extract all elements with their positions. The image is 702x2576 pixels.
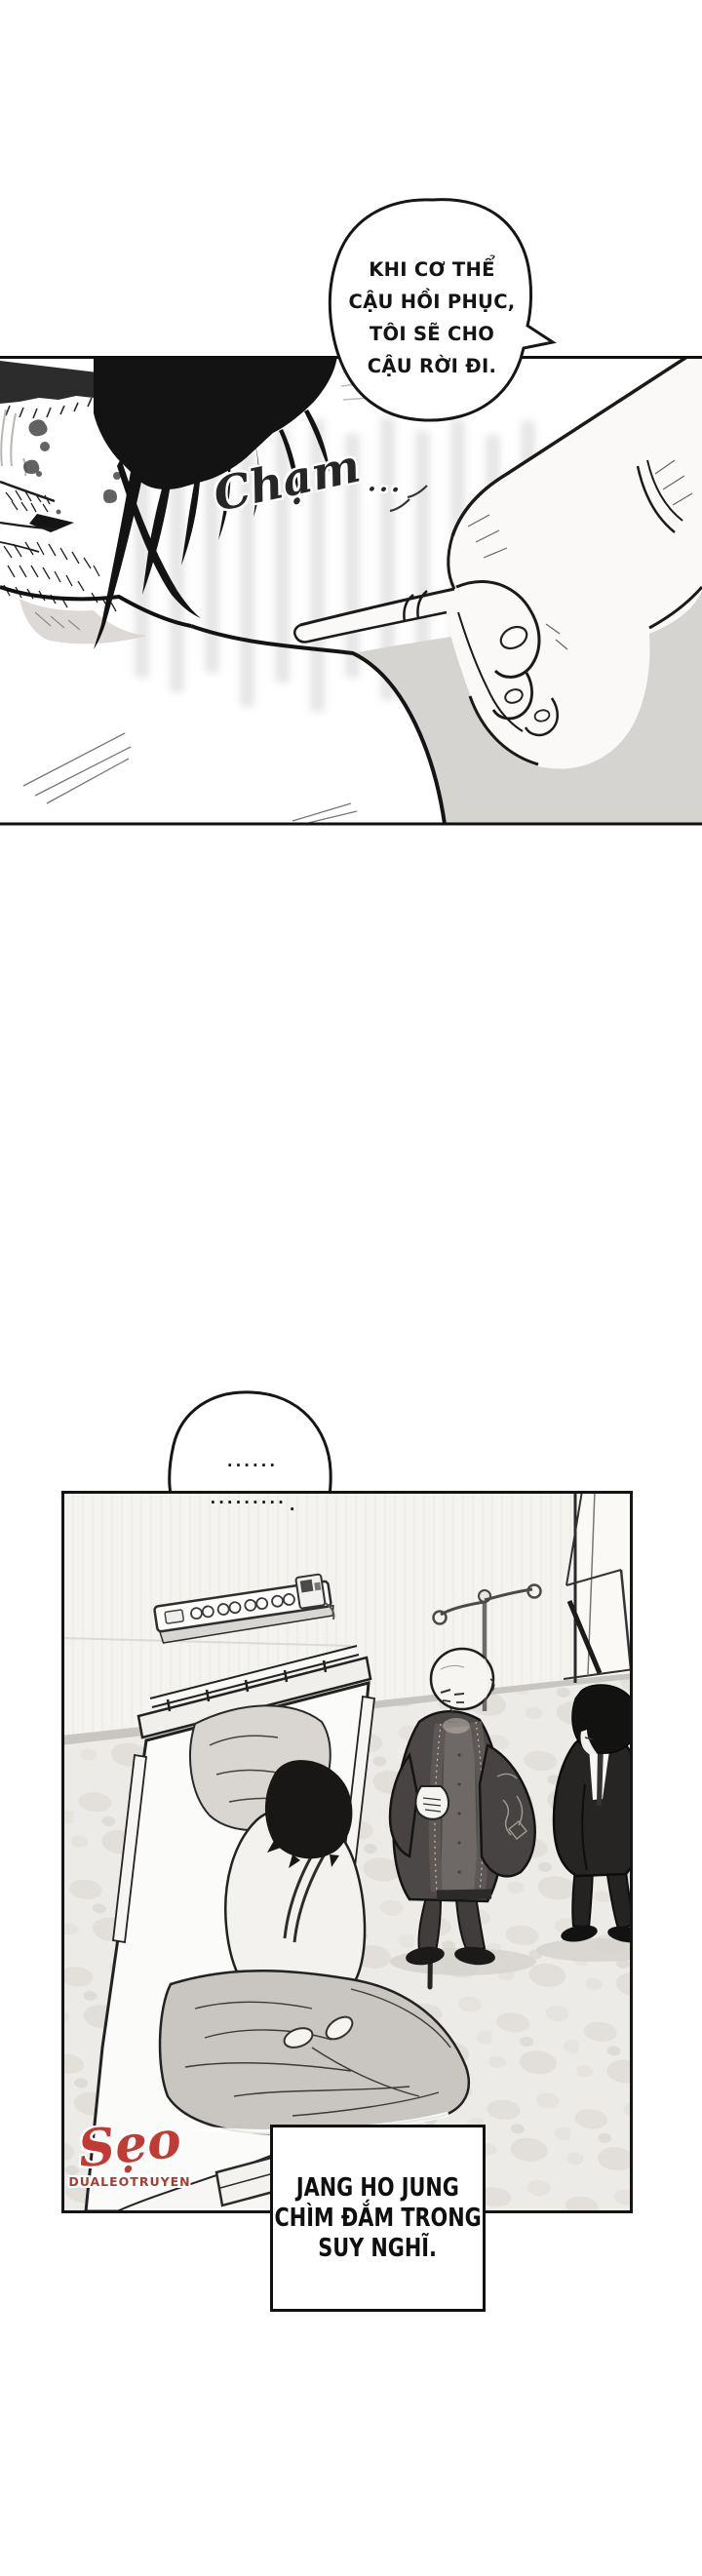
thought-dots-line1: ......	[181, 1443, 324, 1480]
thought-dots-line2: ..........	[181, 1480, 324, 1517]
caption-line: SUY NGHĨ.	[319, 2234, 438, 2264]
speech-bubble-text: KHI CƠ THỂ CẬU HỒI PHỤC, TÔI SẼ CHO CẬU …	[339, 254, 525, 382]
panel-2	[61, 1491, 657, 2212]
speech-line: KHI CƠ THỂ	[339, 254, 525, 286]
watermark-logo: Sẹo DUALEOTRUYEN	[57, 2118, 203, 2189]
sfx-dots: ...	[367, 468, 403, 498]
elder-head	[431, 1649, 493, 1709]
narration-caption: JANG HO JUNG CHÌM ĐẮM TRONG SUY NGHĨ.	[270, 2125, 486, 2312]
watermark-name: Sẹo	[54, 2110, 205, 2179]
elder-hand	[415, 1786, 448, 1819]
thought-bubble-text: ...... ..........	[181, 1443, 324, 1517]
speech-line: TÔI SẼ CHO	[339, 318, 525, 350]
speech-line: CẬU RỜI ĐI.	[339, 350, 525, 382]
thought-low-dot: .	[290, 1487, 298, 1524]
speech-line: CẬU HỒI PHỤC,	[339, 286, 525, 318]
caption-line: JANG HO JUNG	[296, 2173, 459, 2204]
caption-line: CHÌM ĐẮM TRONG	[274, 2204, 481, 2234]
comic-page: KHI CƠ THỂ CẬU HỒI PHỤC, TÔI SẼ CHO CẬU …	[0, 0, 702, 2576]
panel-1	[0, 347, 702, 825]
